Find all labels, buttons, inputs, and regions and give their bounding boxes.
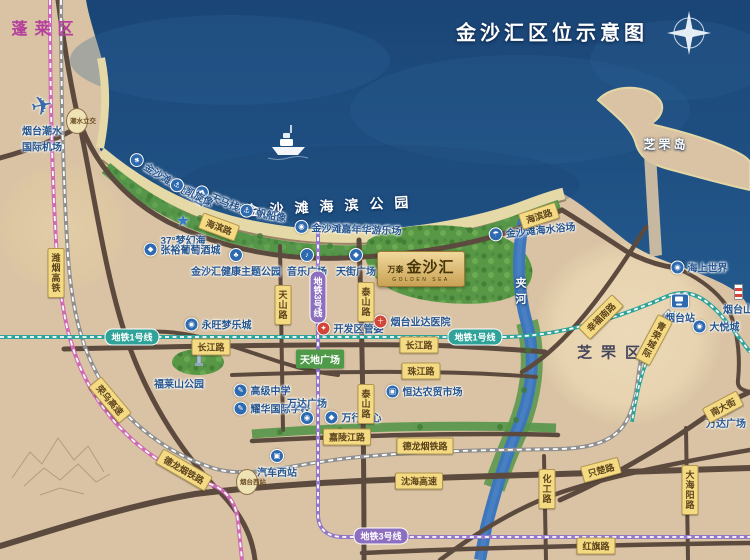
road-label-changjiang-east: 长江路 <box>399 337 438 354</box>
anchor-icon: ⚓ <box>239 202 255 218</box>
market-icon: ▣ <box>386 384 400 398</box>
brand-name: 万泰 <box>387 264 403 275</box>
metro3-label-south: 地铁3号线 <box>353 528 408 545</box>
rail-label-delongyan-east: 德龙烟铁路 <box>396 438 453 455</box>
wine-icon: ◆ <box>144 242 158 256</box>
metro3-label-north: 地铁3号线 <box>310 270 327 323</box>
building-icon: ◆ <box>325 410 339 424</box>
project-logo: 万泰 金沙汇 GOLDEN SEA <box>377 251 465 287</box>
hospital-cross-icon: ＋ <box>374 314 388 328</box>
poi-tiandi-plaza: 天地广场 <box>296 350 344 369</box>
map-geography <box>0 0 750 560</box>
poi-fulai-park: 福莱山公园 <box>154 376 204 391</box>
marker-chaoshui-hub: 潮水立交 <box>66 108 88 134</box>
lighthouse-icon <box>734 284 743 300</box>
mountain-sketch <box>12 438 110 495</box>
mall-icon: ◉ <box>300 411 314 425</box>
carnival-icon: ◉ <box>294 219 308 233</box>
project-name: 金沙汇 <box>406 256 454 277</box>
road-label-jialing: 嘉陵江路 <box>323 429 371 446</box>
district-penglai: 蓬莱区 <box>11 15 80 39</box>
mall-icon: ◉ <box>693 319 707 333</box>
road-label-dahaiyang: 大海阳路 <box>682 465 699 515</box>
train-station-icon <box>671 294 689 309</box>
poi-tianjie-plaza: ◆ 天街广场 <box>336 248 376 278</box>
poi-health-park: ♣ 金沙汇健康主题公园 <box>191 248 281 278</box>
poi-aeon-mall: ◉ 永旺梦乐城 <box>185 317 252 332</box>
school-icon: ✎ <box>234 401 248 415</box>
ship-icon: ◉ <box>671 260 685 274</box>
poi-yantai-hill: 烟台山 <box>723 284 750 316</box>
beach-umbrella-icon: ☂ <box>488 226 503 241</box>
poi-airport: ✈ 烟台潮水 国际机场 <box>22 91 62 154</box>
road-label-huagong: 化工路 <box>539 469 556 509</box>
poi-sea-world: ◉ 海上世界 <box>671 260 728 275</box>
road-label-tianshan: 天山路 <box>275 285 292 325</box>
road-label-taishan-north: 泰山路 <box>358 282 375 322</box>
airplane-icon: ✈ <box>28 89 56 124</box>
music-icon: ♪ <box>300 248 314 262</box>
park-icon: ♣ <box>229 248 243 262</box>
metro1-label-west: 地铁1号线 <box>104 329 159 346</box>
poi-hengda-market: ▣ 恒达农贸市场 <box>386 384 463 399</box>
road-label-zhujiang: 珠江路 <box>401 363 440 380</box>
location-map: 金沙汇区位示意图 蓬莱区 芝罘区 芝罘岛 夹河 金沙滩海滨公园 ♣ 金沙滩湿地公… <box>0 0 750 560</box>
school-icon: ✎ <box>234 383 248 397</box>
star-icon: ★ <box>176 211 190 231</box>
mall-icon: ◉ <box>185 317 199 331</box>
road-label-shenhai-expwy: 沈海高速 <box>395 473 443 490</box>
zhifu-island-label: 芝罘岛 <box>643 136 688 153</box>
road-label-changjiang-west: 长江路 <box>191 339 230 356</box>
poi-wanda-west: 万达广场 ◉ <box>287 395 327 425</box>
poi-bus-station: ▣ 汽车西站 <box>257 449 297 479</box>
poi-joy-city: ◉ 大悦城 <box>693 319 740 334</box>
road-label-hongqi: 红旗路 <box>576 538 615 555</box>
plaza-icon: ◆ <box>349 248 363 262</box>
west-beach <box>100 58 105 148</box>
page-title: 金沙汇区位示意图 <box>456 17 648 46</box>
jia-river-label: 夹河 <box>512 277 528 309</box>
bus-icon: ▣ <box>270 449 284 463</box>
road-label-taishan-south: 泰山路 <box>358 384 375 424</box>
rail-label-weiyan-hsr: 潍烟高铁 <box>48 248 65 298</box>
metro1-label-east: 地铁1号线 <box>447 329 502 346</box>
project-name-en: GOLDEN SEA <box>392 277 450 283</box>
poi-high-school: ✎ 高级中学 <box>234 383 291 398</box>
marker-yantai-west-station: 烟台西站 <box>236 469 258 495</box>
poi-yeda-hospital: ＋ 烟台业达医院 <box>374 314 451 329</box>
